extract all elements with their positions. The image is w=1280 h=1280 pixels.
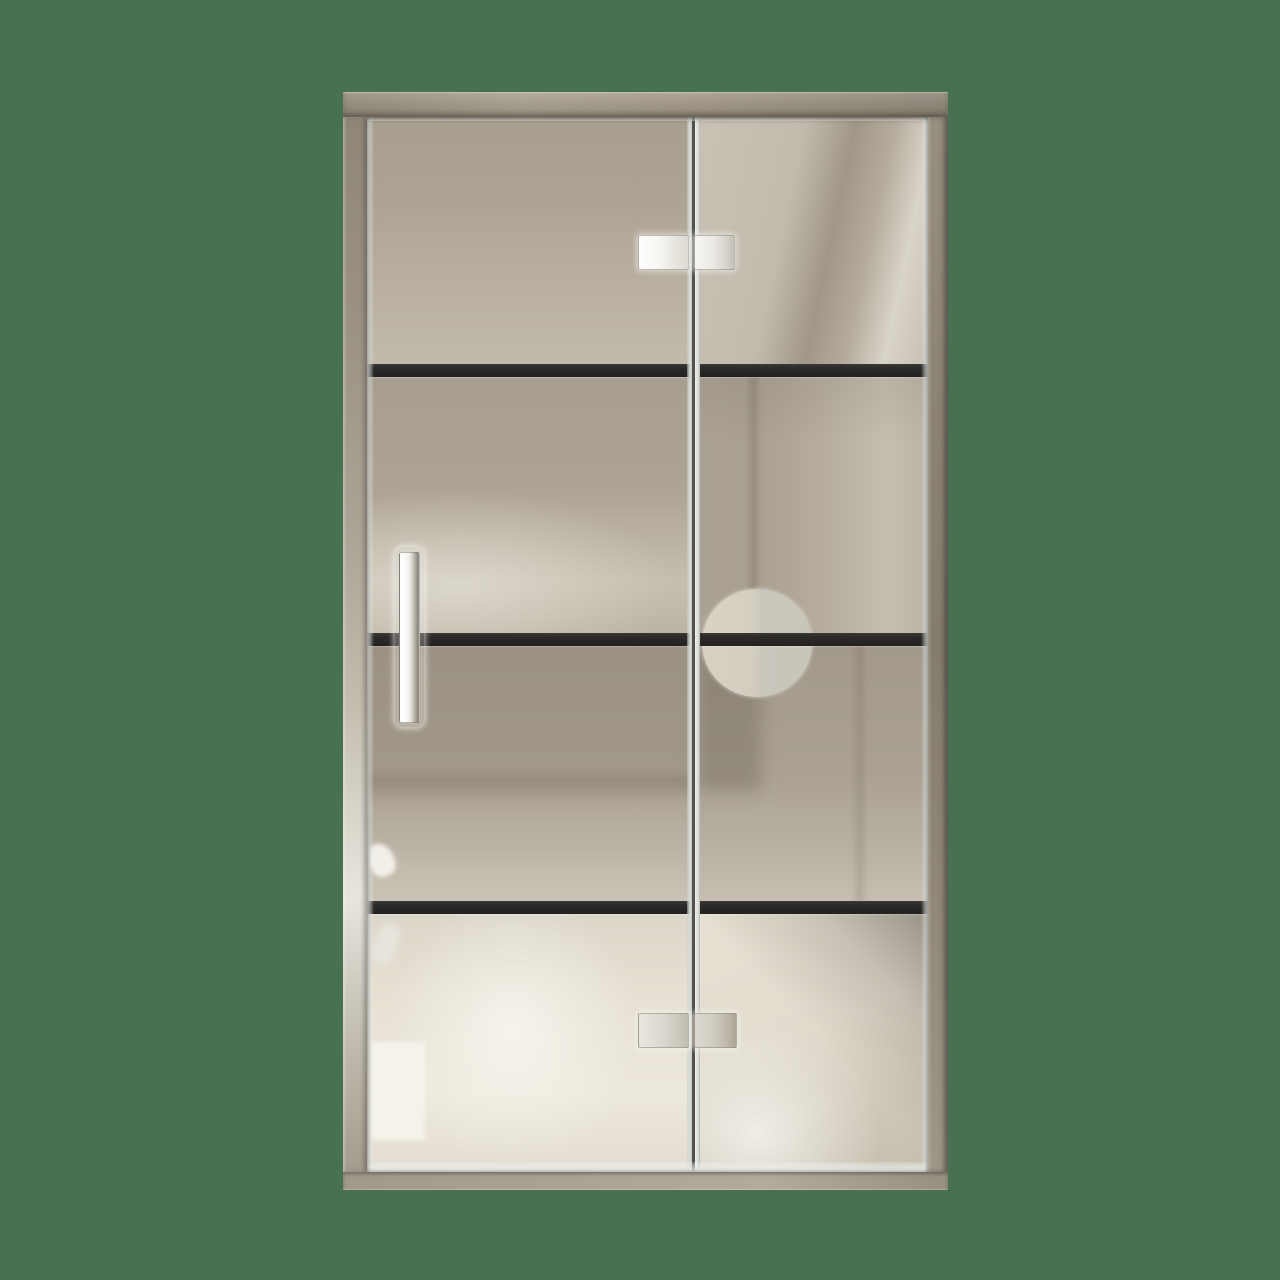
- top-hinge-plate-right: [694, 235, 735, 270]
- bottom-hinge: [638, 1013, 737, 1048]
- grid-bar-right-1: [700, 364, 928, 377]
- top-hinge: [638, 235, 735, 270]
- render-background: [0, 0, 1280, 1280]
- glass-area: [367, 117, 928, 1172]
- door-handle: [399, 552, 420, 723]
- grid-bar-left-1: [367, 364, 691, 377]
- grid-bar-right-3: [700, 901, 928, 914]
- door-frame-top: [343, 92, 948, 117]
- top-hinge-plate-left: [638, 235, 689, 270]
- bottom-hinge-plate-left: [638, 1013, 689, 1048]
- grid-bar-right-2: [700, 633, 928, 646]
- shower-door: [343, 92, 948, 1190]
- door-frame-bottom: [343, 1172, 948, 1190]
- floor-light-reflection: [371, 1042, 425, 1140]
- bottom-hinge-plate-right: [694, 1013, 737, 1048]
- door-frame-left: [343, 117, 367, 1172]
- grid-bar-left-3: [367, 901, 691, 914]
- door-frame-right: [928, 117, 948, 1172]
